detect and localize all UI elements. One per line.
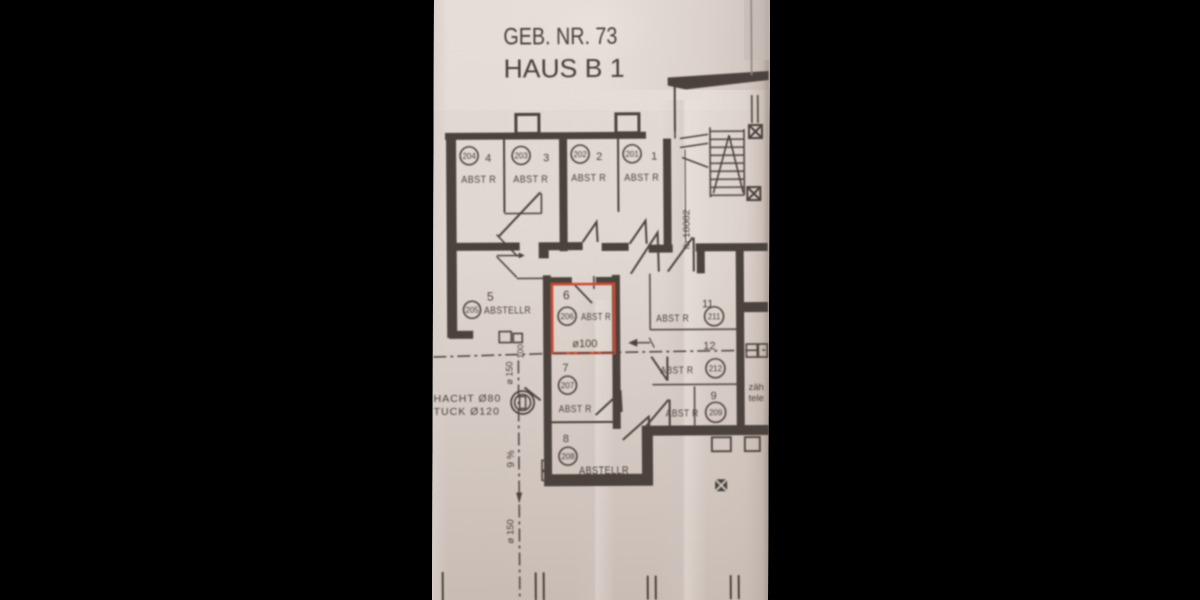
svg-text:12: 12: [703, 340, 715, 352]
svg-text:2: 2: [596, 151, 602, 163]
svg-text:1: 1: [651, 151, 657, 163]
svg-text:TUCK Ø120: TUCK Ø120: [434, 406, 500, 418]
svg-text:5: 5: [487, 290, 494, 304]
svg-text:GEB. NR. 73: GEB. NR. 73: [503, 23, 617, 51]
svg-text:201: 201: [625, 150, 639, 159]
svg-text:4: 4: [485, 153, 491, 165]
svg-text:ABST R: ABST R: [513, 173, 548, 185]
svg-text:207: 207: [561, 381, 575, 390]
svg-text:211: 211: [708, 312, 721, 321]
svg-text:HACHT Ø80: HACHT Ø80: [434, 393, 502, 405]
svg-text:206: 206: [560, 312, 574, 321]
svg-text:ABST R: ABST R: [660, 365, 693, 376]
svg-text:ø100: ø100: [572, 338, 597, 350]
svg-text:202: 202: [573, 150, 587, 159]
svg-text:212: 212: [709, 364, 723, 373]
svg-text:11: 11: [702, 298, 713, 310]
svg-text:9: 9: [711, 390, 717, 402]
svg-text:ABSTELLR: ABSTELLR: [579, 465, 629, 477]
svg-text:zäh: zäh: [749, 382, 764, 393]
svg-text:ABST R: ABST R: [656, 313, 689, 324]
svg-text:209: 209: [709, 408, 723, 417]
svg-text:ø 150: ø 150: [504, 362, 514, 385]
svg-text:6: 6: [563, 288, 570, 302]
svg-text:ABST R: ABST R: [581, 311, 611, 323]
svg-text:ø 150: ø 150: [505, 519, 516, 543]
svg-text:ABST R: ABST R: [559, 403, 592, 415]
svg-text:203: 203: [514, 151, 528, 160]
svg-text:ABSTELLR: ABSTELLR: [484, 304, 531, 316]
svg-text:8: 8: [563, 433, 569, 445]
svg-text:9 %: 9 %: [506, 450, 517, 467]
svg-text:ABST R: ABST R: [666, 408, 699, 419]
svg-text:ABST R: ABST R: [571, 172, 606, 184]
svg-text:100: 100: [515, 344, 525, 359]
svg-text:fh 18082: fh 18082: [681, 209, 691, 249]
svg-text:tele: tele: [749, 393, 764, 404]
svg-text:205: 205: [465, 306, 479, 315]
svg-text:204: 204: [462, 152, 476, 161]
svg-text:208: 208: [561, 452, 575, 461]
svg-text:3: 3: [543, 152, 549, 164]
svg-text:ABST R: ABST R: [461, 174, 496, 186]
svg-text:HAUS B 1: HAUS B 1: [503, 53, 624, 84]
svg-text:ABST R: ABST R: [624, 172, 659, 184]
svg-text:7: 7: [562, 362, 568, 374]
